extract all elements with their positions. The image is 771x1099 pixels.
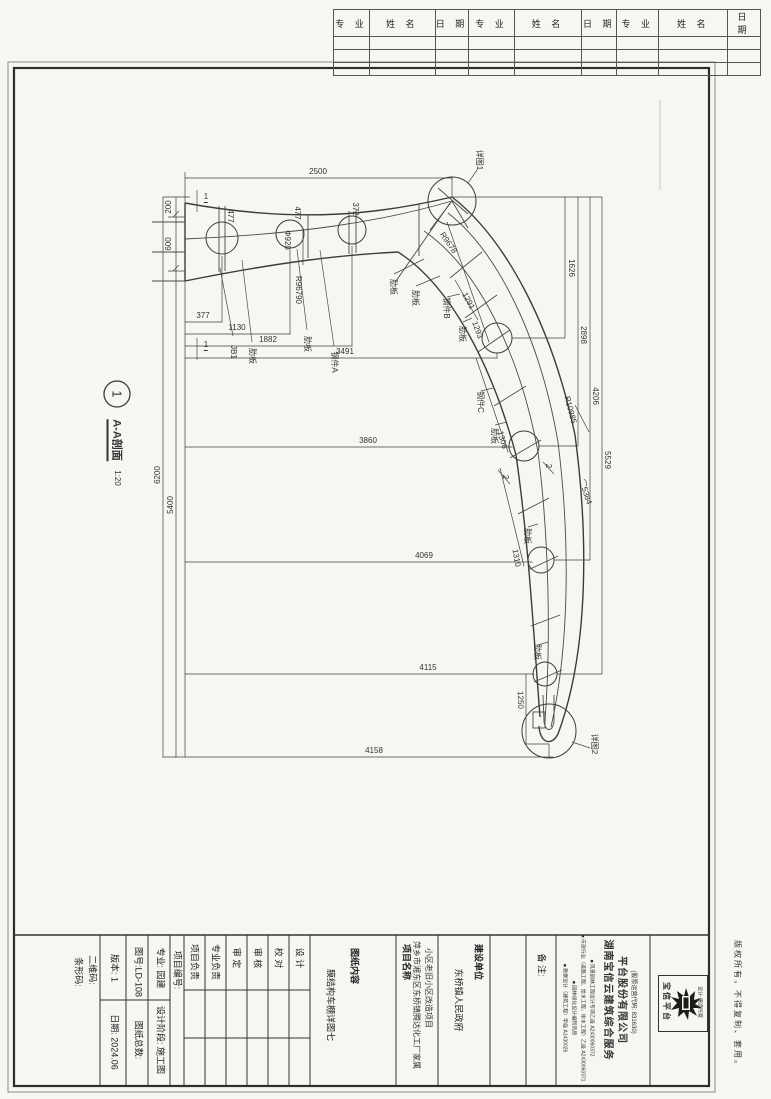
signature-empty-cell <box>617 63 659 76</box>
part-callout: 肋板 <box>248 348 256 364</box>
section-2-mark: 2 <box>501 475 509 479</box>
signature-empty-cell <box>582 37 617 50</box>
signature-empty-cell <box>659 63 728 76</box>
signature-empty-cell <box>469 63 514 76</box>
part-callout: 肋板 <box>490 428 498 444</box>
signature-empty-row <box>334 37 761 50</box>
signature-column-header: 姓 名 <box>514 10 582 37</box>
signature-column-header: 专 业 <box>469 10 514 37</box>
logo-name: 宝信平台 <box>662 982 670 1022</box>
sheet-border <box>8 62 715 1092</box>
signature-empty-cell <box>334 50 370 63</box>
company-cert-line: ■ 园林绿化设计编制资质 <box>571 981 576 1035</box>
copyright-notice: 版权所有，不得复制、套用。 <box>733 940 741 1070</box>
client-value: 东桥镇人民政府 <box>454 968 463 1031</box>
signature-empty-cell <box>514 37 582 50</box>
signature-table-header: 专 业姓 名日 期专 业姓 名日 期专 业姓 名日 期 <box>334 10 761 37</box>
sheet-total-label: 图纸总数: <box>134 1021 143 1060</box>
drawing-number: 图号:LD-108 <box>134 947 143 997</box>
dim-d920: Φ920 <box>283 230 291 250</box>
signature-empty-cell <box>514 50 582 63</box>
signature-empty-cell <box>617 50 659 63</box>
dim-477: 477 <box>226 209 234 222</box>
part-callout: 钢件C <box>476 391 484 413</box>
dim-5400: 5400 <box>167 496 175 514</box>
signature-empty-cell <box>659 50 728 63</box>
dim-5529: 5529 <box>603 451 611 469</box>
signature-empty-cell <box>369 63 435 76</box>
role-checker: 校 对 <box>274 948 283 969</box>
project-name-line2: 小区老旧小区改造项目 <box>424 948 432 1028</box>
qrcode-label: 二维码: <box>88 955 97 985</box>
section-callout-number: 1 <box>111 390 124 397</box>
section-1-mark: 1 <box>204 341 208 351</box>
signature-column-header: 日 期 <box>435 10 469 37</box>
role-designer: 设 计 <box>295 948 304 969</box>
project-name-label: 项目名称 <box>402 944 411 980</box>
detail-2-callout: 详图2 <box>590 734 598 754</box>
dim-6200: 6200 <box>154 466 162 484</box>
signature-column-header: 日 期 <box>728 10 761 37</box>
section-1-mark: 1 <box>204 193 208 203</box>
stage-field: 设计阶段: 施工图 <box>156 1006 165 1074</box>
sheet-content-value: 膜结构车棚详图七 <box>326 969 335 1041</box>
date-field: 日期: 2024.06 <box>110 1014 119 1070</box>
signature-empty-cell <box>369 37 435 50</box>
dim-2898: 2898 <box>579 326 587 344</box>
signature-empty-cell <box>435 37 469 50</box>
role-major-lead: 专业负责 <box>211 944 220 980</box>
role-approver: 审 定 <box>232 948 241 969</box>
client-label: 建设单位 <box>474 944 483 980</box>
part-callout: 肋板 <box>533 644 541 660</box>
signature-empty-cell <box>435 50 469 63</box>
company-name-line1: 湖南宝信云建筑综合服务 <box>602 940 612 1061</box>
role-project-lead: 项目负责 <box>190 944 199 980</box>
part-callout: 肋板 <box>523 528 531 544</box>
part-callout: 肋板 <box>303 336 311 352</box>
company-stock-code: (股票运营代码: 831630) <box>630 970 636 1033</box>
dim-372: 372 <box>351 202 359 215</box>
beam-web-lines <box>152 188 566 730</box>
part-callout: 肋板 <box>458 326 466 342</box>
sheet-content-label: 图纸内容 <box>350 948 359 984</box>
version-field: 版本: 1 <box>110 954 119 982</box>
signature-empty-cell <box>369 50 435 63</box>
dim-200: 200 <box>165 200 173 213</box>
signature-column-header: 专 业 <box>617 10 659 37</box>
dim-4069: 4069 <box>415 552 433 560</box>
signature-empty-cell <box>582 50 617 63</box>
dim-1626: 1626 <box>567 259 575 277</box>
part-callout: 钢件B <box>442 297 450 318</box>
dim-377: 377 <box>196 312 209 320</box>
signature-empty-cell <box>728 63 761 76</box>
section-2-mark: 2 <box>544 464 552 468</box>
section-callout-scale: 1:20 <box>113 470 121 486</box>
signature-empty-row <box>334 50 761 63</box>
dim-477: 477 <box>293 206 301 219</box>
signature-empty-cell <box>617 37 659 50</box>
signature-column-header: 日 期 <box>582 10 617 37</box>
company-name-line2: 平台股份有限公司 <box>616 956 626 1044</box>
dim-2500: 2500 <box>309 168 327 176</box>
barcode-label: 条形码: <box>74 957 83 987</box>
section-callout-title: A-A剖面 <box>107 419 122 461</box>
signature-empty-cell <box>334 37 370 50</box>
signature-column-header: 姓 名 <box>659 10 728 37</box>
drawing-sheet: 专 业姓 名日 期专 业姓 名日 期专 业姓 名日 期 250020060062… <box>0 0 771 1099</box>
logo-tagline: 设计·建造托管 <box>697 986 702 1018</box>
signature-empty-cell <box>469 50 514 63</box>
dim-3860: 3860 <box>359 437 377 445</box>
dim-4158: 4158 <box>365 747 383 755</box>
dim-4206: 4206 <box>591 387 599 405</box>
project-name-line1: 萍乡市湘东区东桥镇腾达化工厂家属 <box>412 941 420 1069</box>
signature-empty-cell <box>435 63 469 76</box>
dim-r96790: R96790 <box>294 276 302 304</box>
sheet-linework <box>0 0 771 1099</box>
dim-4115: 4115 <box>419 664 436 672</box>
project-no-label: 项目编号: <box>173 951 182 990</box>
signature-empty-cell <box>728 37 761 50</box>
part-callout: JB1 <box>229 345 237 359</box>
company-cert-line: ■ 市政行业（道路工程、给水工程、排水工程）乙级 A2430060371 <box>580 935 585 1082</box>
signature-empty-row <box>334 63 761 76</box>
signature-empty-cell <box>514 63 582 76</box>
company-cert-line: ■ 风景园林工程设计专项乙级 A2430060372 <box>589 960 594 1057</box>
signature-empty-cell <box>728 50 761 63</box>
hole-circles <box>104 177 576 758</box>
dim-1310: 1310 <box>511 549 522 568</box>
notes-label: 备 注: <box>537 953 546 976</box>
signature-empty-cell <box>582 63 617 76</box>
signature-table: 专 业姓 名日 期专 业姓 名日 期专 业姓 名日 期 <box>333 9 761 76</box>
dim-1882: 1882 <box>259 336 277 344</box>
part-callout: 肋板 <box>389 279 397 295</box>
signature-empty-cell <box>334 63 370 76</box>
signature-column-header: 专 业 <box>334 10 370 37</box>
signature-column-header: 姓 名 <box>369 10 435 37</box>
company-cert-line: ■ 勘察设计（建筑工程）甲级 A1430026 <box>562 964 567 1053</box>
part-callout: 钢件A <box>330 351 338 372</box>
dim-600: 600 <box>165 237 173 250</box>
signature-empty-cell <box>659 37 728 50</box>
detail-1-callout: 详图1 <box>475 150 483 170</box>
beam-outline <box>185 197 584 742</box>
dim-1130: 1130 <box>228 324 245 332</box>
part-callout: 肋板 <box>411 290 419 306</box>
dim-1250: 1250 <box>516 691 525 709</box>
signature-empty-cell <box>469 37 514 50</box>
role-reviewer: 审 核 <box>253 948 262 969</box>
major-field: 专业: 园建 <box>156 947 165 988</box>
